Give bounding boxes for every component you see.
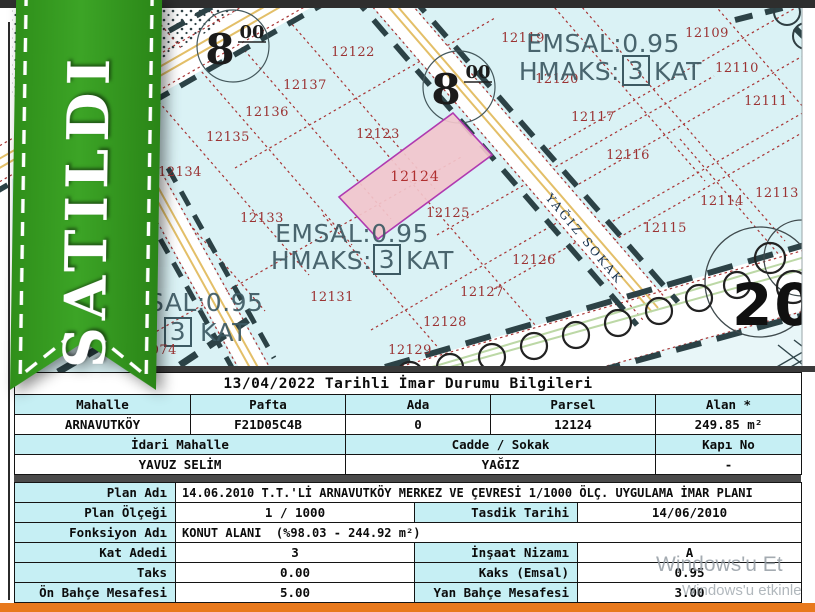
hmaks-label: HMAKS: <box>271 246 372 275</box>
parcel-number: 12128 <box>423 315 467 330</box>
label-kaks-emsal: Kaks (Emsal) <box>415 563 578 583</box>
parcel-number: 12134 <box>158 165 202 180</box>
value-tasdik-tarihi: 14/06/2010 <box>578 503 802 523</box>
parcel-number: 12113 <box>755 186 799 201</box>
emsal-label: EMSAL:0.95 <box>526 29 680 58</box>
parcel-number: 12131 <box>310 290 354 305</box>
bottom-accent-bar <box>0 603 815 612</box>
map-right-margin <box>802 0 815 372</box>
parcel-number: 12122 <box>331 45 375 60</box>
value-kat-adedi: 3 <box>176 543 415 563</box>
road-width-int: 8 <box>205 25 234 74</box>
hmaks-kat: KAT <box>200 318 248 347</box>
label-plan-adi: Plan Adı <box>15 483 176 503</box>
zoning-label-left: EMSAL:0.95 HMAKS: 3 KAT <box>271 219 454 275</box>
value-taks: 0.00 <box>176 563 415 583</box>
road-width-dec: 00 <box>465 62 490 83</box>
value-mahalle: ARNAVUTKÖY <box>15 415 191 435</box>
sold-ribbon: SATILDI <box>9 0 163 398</box>
value-parsel: 12124 <box>491 415 656 435</box>
header-kapi-no: Kapı No <box>656 435 802 455</box>
parcel-number: 12111 <box>744 94 788 109</box>
value-pafta: F21D05C4B <box>191 415 346 435</box>
header-pafta: Pafta <box>191 395 346 415</box>
hmaks-floors: 3 <box>628 56 644 85</box>
value-on-bahce: 5.00 <box>176 583 415 603</box>
parcel-number: 12117 <box>571 110 615 125</box>
parcel-number: 12127 <box>460 285 504 300</box>
road-width-dec: 00 <box>239 22 264 43</box>
parcel-number: 12125 <box>426 206 470 221</box>
road-width-int: 8 <box>431 65 460 114</box>
table-section-divider <box>14 475 801 482</box>
value-idari-mahalle: YAVUZ SELİM <box>15 455 346 475</box>
value-ada: 0 <box>346 415 491 435</box>
parcel-number: 12109 <box>685 26 729 41</box>
emsal-label: EMSAL:0.95 <box>275 219 429 248</box>
parcel-number: 12115 <box>643 221 687 236</box>
value-kapi-no: - <box>656 455 802 475</box>
hmaks-floors: 3 <box>170 317 186 346</box>
windows-activation-watermark-sub: Windows'u etkinle <box>682 582 802 599</box>
header-cadde-sokak: Cadde / Sokak <box>346 435 656 455</box>
parcel-number: 12136 <box>245 105 289 120</box>
label-fonksiyon-adi: Fonksiyon Adı <box>15 523 176 543</box>
zoning-label-right: EMSAL:0.95 HMAKS: 3 KAT <box>519 29 702 86</box>
hmaks-floors: 3 <box>379 245 395 274</box>
value-alan: 249.85 m² <box>656 415 802 435</box>
hmaks-kat: KAT <box>654 57 702 86</box>
value-plan-olcegi: 1 / 1000 <box>176 503 415 523</box>
parcel-number: 12114 <box>700 194 744 209</box>
label-plan-olcegi: Plan Ölçeği <box>15 503 176 523</box>
sold-ribbon-label: SATILDI <box>51 52 123 369</box>
label-kat-adedi: Kat Adedi <box>15 543 176 563</box>
value-plan-adi: 14.06.2010 T.T.'Lİ ARNAVUTKÖY MERKEZ VE … <box>176 483 802 503</box>
parcel-number: 12126 <box>512 253 556 268</box>
value-cadde-sokak: YAĞIZ <box>346 455 656 475</box>
label-yan-bahce: Yan Bahçe Mesafesi <box>415 583 578 603</box>
emsal-label-partial: SAL:0.95 <box>148 288 263 317</box>
listing-image: 1212212137121361213512134121231212512133… <box>0 0 815 612</box>
header-idari-mahalle: İdari Mahalle <box>15 435 346 455</box>
hmaks-label: HMAKS: <box>519 57 620 86</box>
parcel-number: 12123 <box>356 127 400 142</box>
parcel-number: 12137 <box>283 78 327 93</box>
windows-activation-watermark: Windows'u Et <box>656 553 783 577</box>
header-parsel: Parsel <box>491 395 656 415</box>
label-insaat-nizami: İnşaat Nizamı <box>415 543 578 563</box>
header-ada: Ada <box>346 395 491 415</box>
hmaks-kat: KAT <box>406 246 454 275</box>
label-tasdik-tarihi: Tasdik Tarihi <box>415 503 578 523</box>
parcel-number: 12135 <box>206 130 250 145</box>
highlighted-parcel-number: 12124 <box>390 169 440 185</box>
parcel-number: 12129 <box>388 343 432 358</box>
label-taks: Taks <box>15 563 176 583</box>
value-fonksiyon-adi: KONUT ALANI (%98.03 - 244.92 m²) <box>176 523 802 543</box>
parcel-number: 12110 <box>715 61 759 76</box>
parcel-number: 12116 <box>606 148 650 163</box>
label-on-bahce: Ön Bahçe Mesafesi <box>15 583 176 603</box>
header-alan: Alan * <box>656 395 802 415</box>
